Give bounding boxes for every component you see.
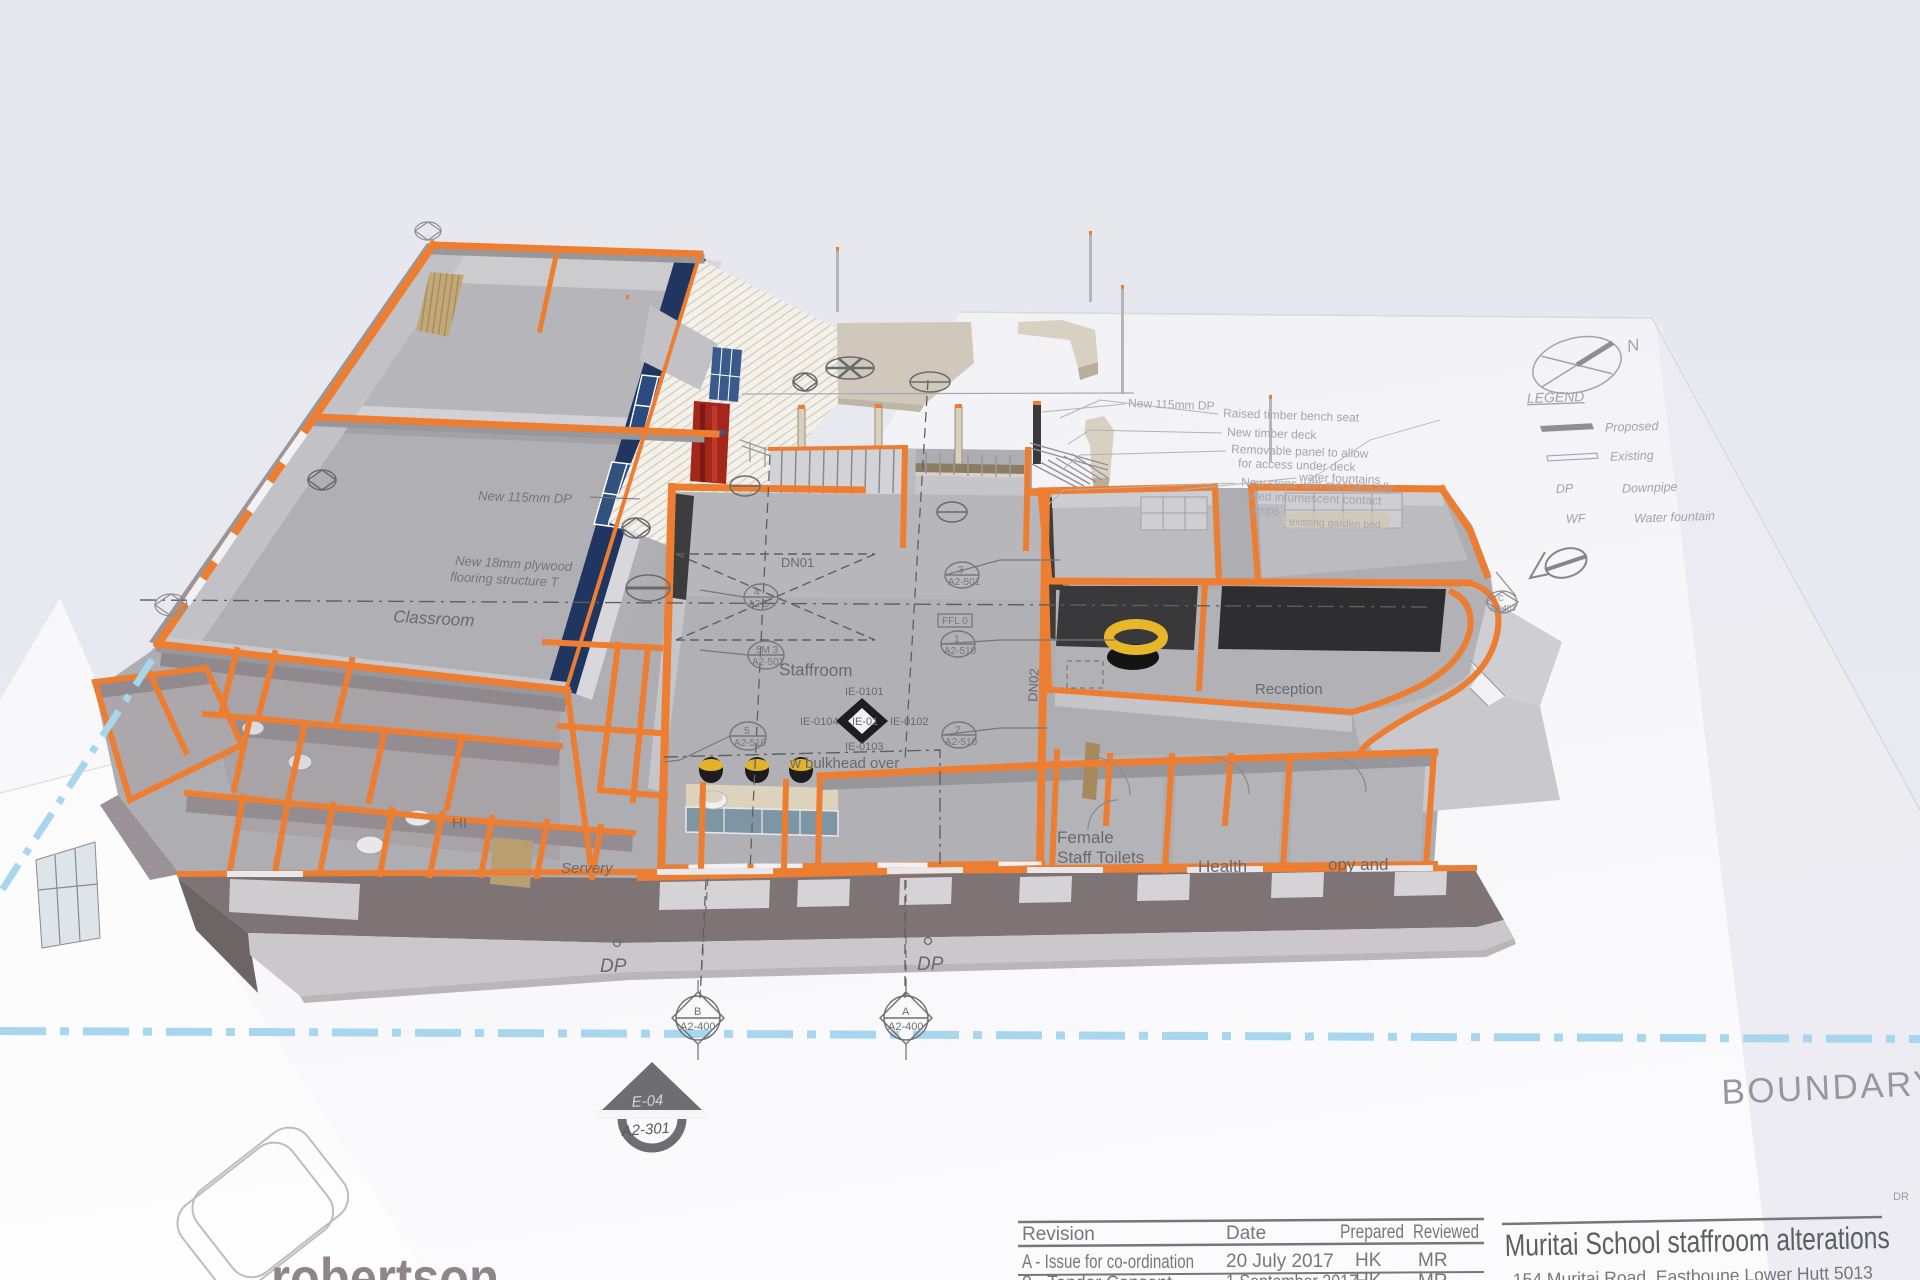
svg-text:A - Issue for co-ordination: A - Issue for co-ordination xyxy=(1022,1252,1194,1273)
svg-text:5: 5 xyxy=(744,726,750,737)
svg-text:C: C xyxy=(1498,594,1504,603)
svg-text:E-04: E-04 xyxy=(631,1092,664,1111)
svg-text:Staffroom: Staffroom xyxy=(779,660,853,680)
svg-text:A2-510: A2-510 xyxy=(945,737,978,748)
svg-text:Revision: Revision xyxy=(1022,1224,1095,1245)
svg-text:DP: DP xyxy=(917,954,944,975)
svg-text:HK: HK xyxy=(1355,1250,1382,1271)
svg-text:Downpipe: Downpipe xyxy=(1622,480,1678,496)
svg-text:DP: DP xyxy=(1556,481,1575,496)
svg-text:DP: DP xyxy=(600,956,627,977)
svg-text:A2-501: A2-501 xyxy=(948,577,981,588)
svg-text:Servery: Servery xyxy=(561,860,614,877)
svg-text:opy and: opy and xyxy=(1328,855,1389,874)
svg-text:2: 2 xyxy=(955,725,961,736)
svg-text:Existing: Existing xyxy=(1610,448,1654,464)
svg-text:HI: HI xyxy=(452,815,467,832)
svg-text:0 - Tender Consent: 0 - Tender Consent xyxy=(1022,1273,1173,1280)
svg-text:1 September 2017: 1 September 2017 xyxy=(1226,1272,1358,1280)
svg-text:DN02: DN02 xyxy=(1025,668,1042,702)
svg-text:Date: Date xyxy=(1226,1223,1266,1244)
svg-text:Reception: Reception xyxy=(1255,681,1323,698)
svg-text:w bulkhead over: w bulkhead over xyxy=(789,755,899,772)
svg-text:WF: WF xyxy=(1566,511,1587,526)
svg-text:robertson: robertson xyxy=(271,1246,499,1280)
svg-text:Water fountain: Water fountain xyxy=(1634,509,1716,526)
svg-text:IE-0103: IE-0103 xyxy=(845,741,884,753)
svg-text:Prepared: Prepared xyxy=(1340,1222,1404,1243)
svg-text:MR: MR xyxy=(1418,1271,1448,1280)
svg-text:DR: DR xyxy=(1893,1191,1909,1203)
svg-text:DN01: DN01 xyxy=(781,555,814,570)
svg-text:A2-301: A2-301 xyxy=(620,1120,670,1140)
svg-text:IE-0101: IE-0101 xyxy=(845,686,884,698)
svg-text:FFL 0: FFL 0 xyxy=(942,616,968,627)
svg-text:IE-0102: IE-0102 xyxy=(890,716,929,728)
svg-text:Proposed: Proposed xyxy=(1605,419,1660,435)
svg-text:A2-400: A2-400 xyxy=(888,1021,923,1033)
svg-text:20 July 2017: 20 July 2017 xyxy=(1226,1251,1334,1272)
svg-text:water fountains: water fountains xyxy=(1298,470,1381,487)
svg-text:Health: Health xyxy=(1198,857,1247,876)
svg-text:A2-400: A2-400 xyxy=(680,1021,715,1033)
svg-text:LEGEND: LEGEND xyxy=(1527,388,1585,406)
svg-text:Staff Toilets: Staff Toilets xyxy=(1057,848,1144,867)
svg-text:IE-01: IE-01 xyxy=(852,716,878,728)
svg-text:B: B xyxy=(694,1006,701,1018)
svg-text:IE-0104: IE-0104 xyxy=(800,716,839,728)
svg-text:5M 3: 5M 3 xyxy=(756,645,779,656)
svg-text:HK: HK xyxy=(1355,1271,1382,1280)
svg-text:Reviewed: Reviewed xyxy=(1413,1222,1479,1243)
svg-text:A2-510: A2-510 xyxy=(944,646,977,657)
svg-text:A2-5: A2-5 xyxy=(748,599,770,610)
svg-text:strips: strips xyxy=(1251,503,1280,518)
svg-text:Female: Female xyxy=(1057,828,1114,847)
svg-text:A2-510: A2-510 xyxy=(734,738,767,749)
svg-text:4: 4 xyxy=(754,587,760,598)
svg-text:A2-403: A2-403 xyxy=(1490,604,1516,613)
svg-text:A: A xyxy=(902,1006,910,1018)
svg-text:MR: MR xyxy=(1418,1250,1448,1271)
